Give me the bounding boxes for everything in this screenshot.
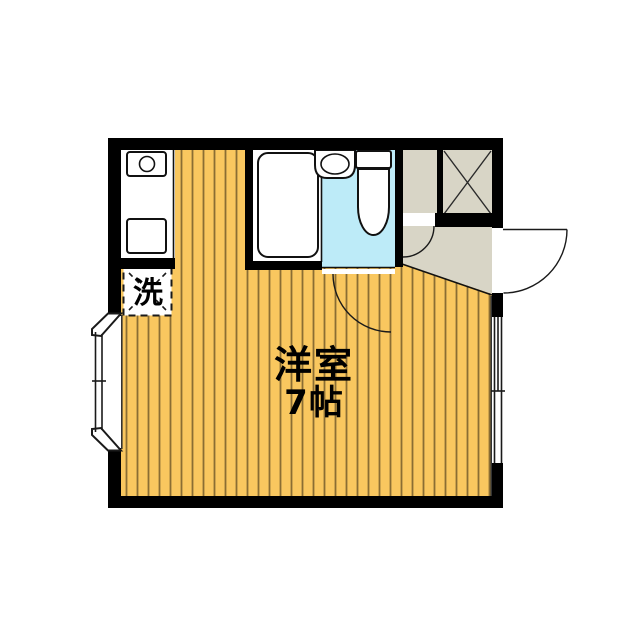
- wall-bath-bottom: [245, 261, 322, 270]
- wall-compartment-divider: [437, 148, 443, 215]
- wall-bottom: [108, 496, 503, 508]
- kitchen-sink: [127, 219, 166, 253]
- wall-kitchen-bottom: [108, 258, 175, 269]
- stove: [127, 152, 166, 176]
- entrance-door-opening: [492, 228, 503, 293]
- wall-right-lower: [492, 463, 503, 508]
- bath-door-opening: [322, 269, 395, 274]
- wall-right-mid: [492, 293, 503, 317]
- toilet-bowl: [358, 169, 389, 235]
- storage-compartment: [403, 150, 437, 215]
- compartment-door-opening: [403, 213, 435, 226]
- bathtub: [258, 153, 318, 257]
- wall-top: [108, 138, 503, 150]
- right-window: [491, 317, 505, 463]
- storage: [403, 150, 492, 215]
- floorplan-image: 洗: [0, 0, 640, 640]
- kitchen: [121, 150, 175, 258]
- toilet-tank: [356, 151, 391, 168]
- wall-left-upper: [108, 138, 121, 316]
- room-label: 洋室: [274, 343, 354, 387]
- wall-wet-right: [395, 148, 403, 267]
- washer-space: 洗: [124, 268, 172, 316]
- wall-closet-bottom: [435, 213, 503, 227]
- wall-bath-left: [245, 148, 253, 270]
- floorplan-canvas: 洗: [0, 0, 640, 640]
- washer-label: 洗: [133, 276, 163, 311]
- room-size-label: 7帖: [284, 383, 344, 423]
